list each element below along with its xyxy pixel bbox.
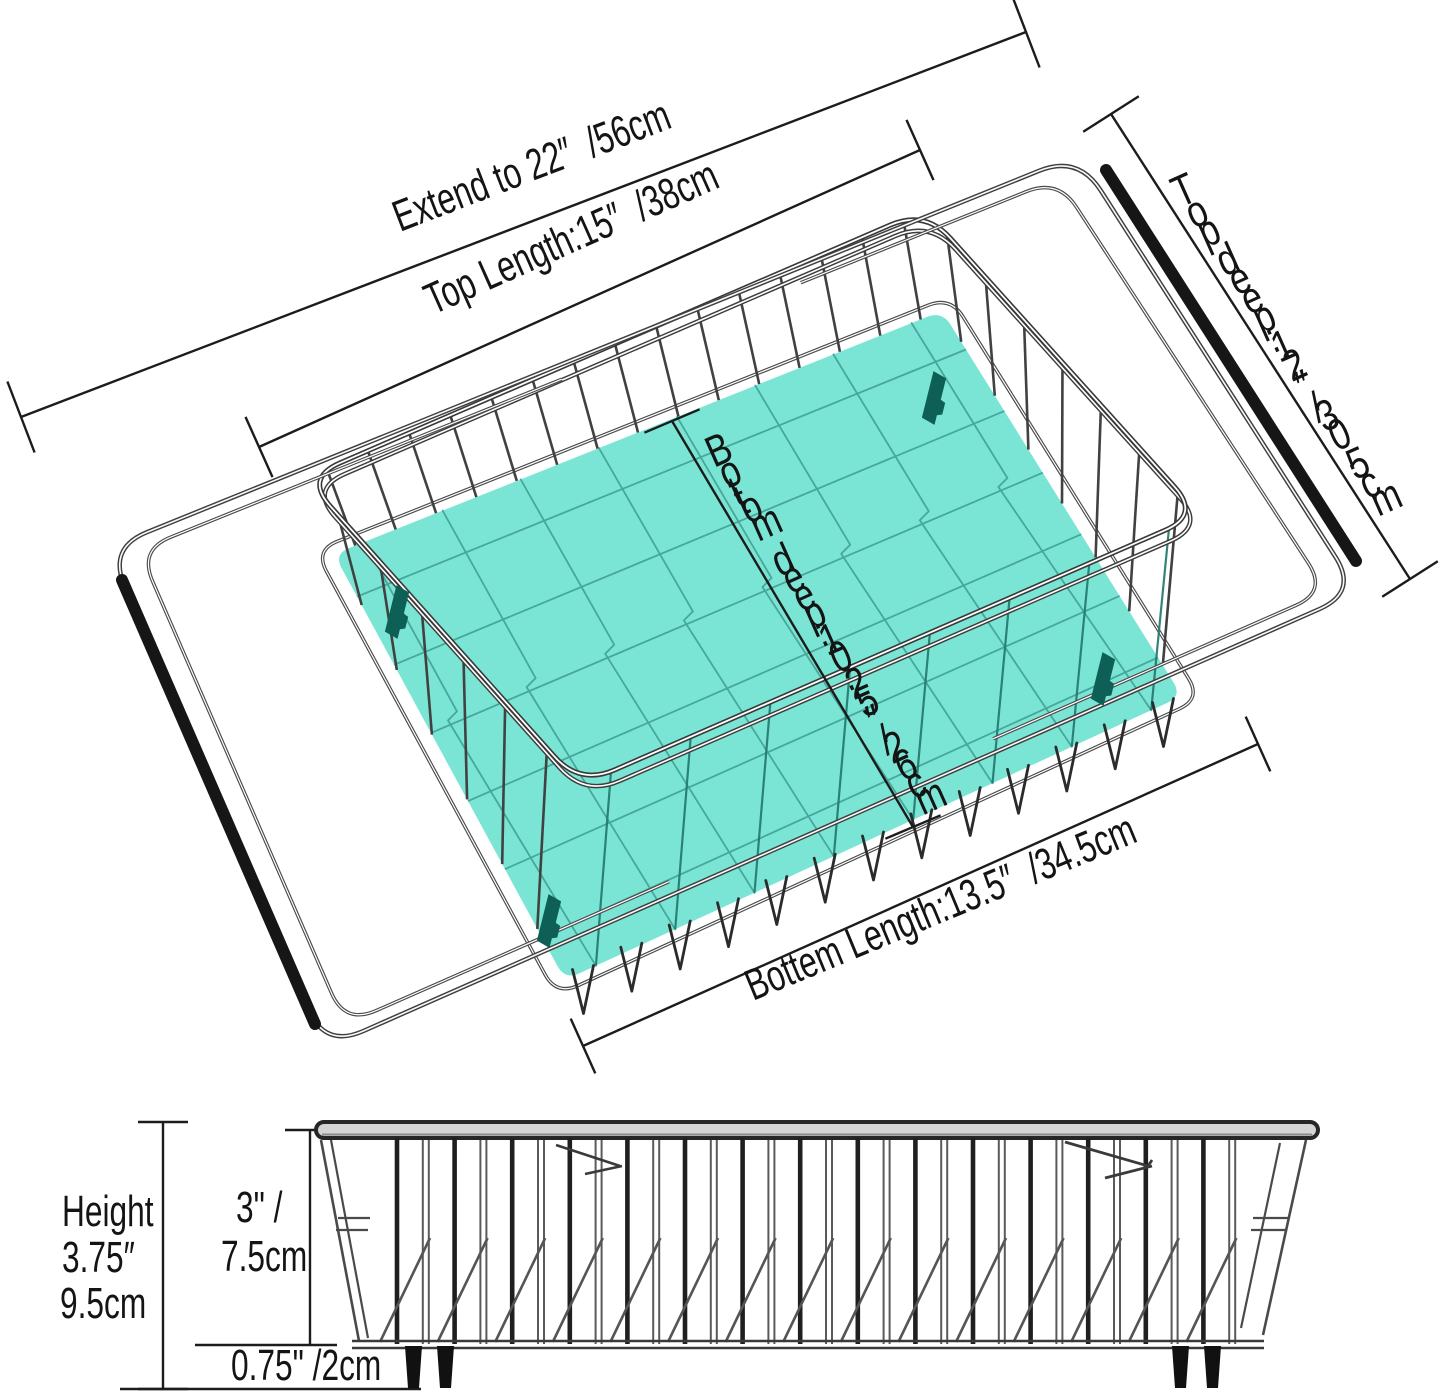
svg-text:Height: Height (62, 1187, 154, 1236)
svg-text:7.5cm: 7.5cm (221, 1232, 307, 1281)
svg-text:9.5cm: 9.5cm (60, 1279, 146, 1328)
svg-text:3.75″: 3.75″ (62, 1233, 135, 1282)
svg-text:3" /: 3" / (236, 1183, 283, 1232)
